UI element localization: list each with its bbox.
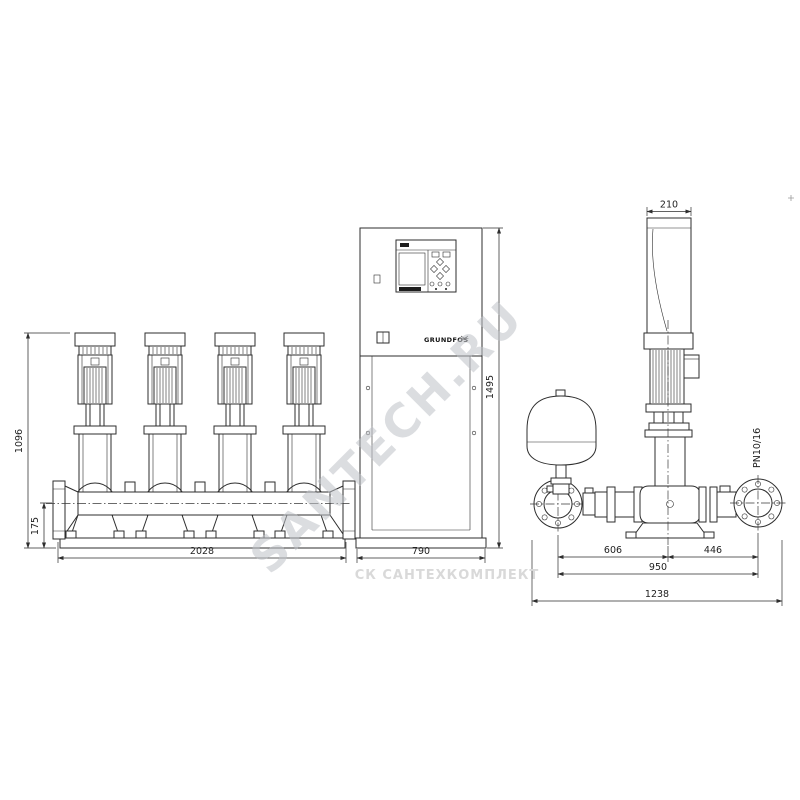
main-switch[interactable] bbox=[377, 332, 389, 343]
dim-cabinet-height: 1495 bbox=[485, 375, 496, 399]
tank-nipple bbox=[556, 390, 565, 396]
vent-stub bbox=[195, 482, 205, 492]
pump-booster-set-drawing: GRUNDFOS bbox=[0, 0, 800, 800]
technical-drawing-page: GRUNDFOS bbox=[0, 0, 800, 800]
registration-mark-icon bbox=[788, 195, 794, 201]
dim-motor-width: 210 bbox=[660, 200, 678, 211]
pump-sleeve bbox=[655, 437, 685, 486]
suction-piping bbox=[583, 487, 642, 522]
dim-front-height: 1096 bbox=[14, 429, 25, 453]
side-view bbox=[527, 218, 786, 545]
discharge-piping bbox=[699, 486, 736, 522]
footer-watermark: СК САНТЕХКОМПЛЕКТ bbox=[355, 568, 540, 583]
terminal-box bbox=[684, 355, 699, 378]
pump-volute bbox=[640, 486, 700, 523]
tank-connection-valve bbox=[547, 465, 571, 494]
control-panel-cu352 bbox=[396, 240, 456, 292]
dim-discharge-span: 446 bbox=[704, 545, 722, 556]
panel-brand-bar bbox=[399, 287, 421, 291]
dim-front-width: 2028 bbox=[190, 546, 214, 557]
discharge-manifold-flange bbox=[730, 475, 786, 531]
pump-side bbox=[640, 218, 700, 523]
diaphragm-tank bbox=[527, 390, 596, 465]
motor-top bbox=[647, 218, 691, 333]
dim-suction-span: 606 bbox=[604, 545, 622, 556]
dim-flange-span: 950 bbox=[649, 562, 667, 573]
vent-stub bbox=[125, 482, 135, 492]
left-end-flange bbox=[53, 481, 65, 539]
pressure-rating-label: PN10/16 bbox=[752, 428, 763, 468]
dim-cabinet-width: 790 bbox=[412, 546, 430, 557]
pump-pedestal-side bbox=[626, 523, 714, 538]
dim-total-width: 1238 bbox=[645, 589, 669, 600]
dim-pipe-axis-height: 175 bbox=[30, 517, 41, 535]
vent-stub bbox=[265, 482, 275, 492]
motor-fins bbox=[650, 349, 684, 404]
pump-2-pedestal bbox=[136, 515, 194, 538]
